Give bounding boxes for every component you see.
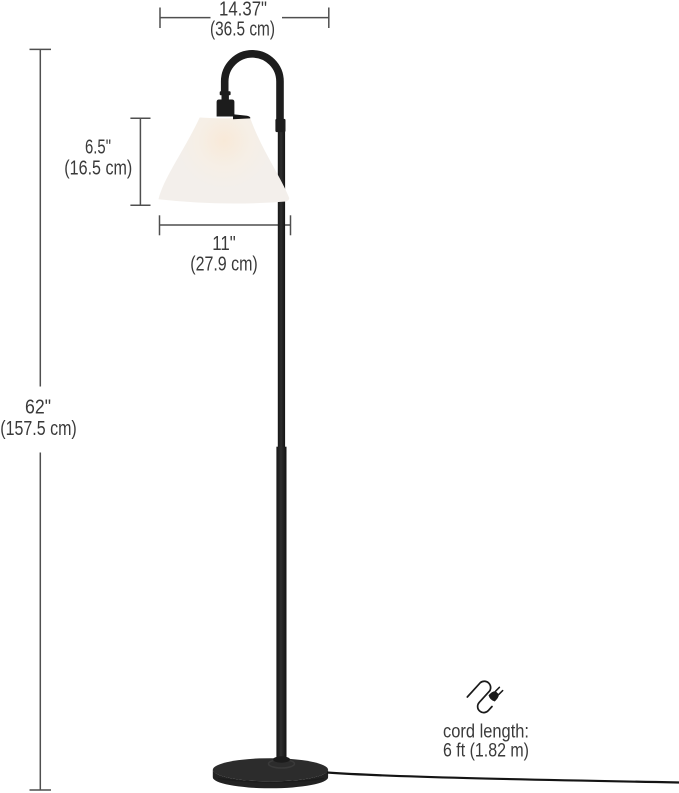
svg-text:(157.5 cm): (157.5 cm) <box>0 418 77 440</box>
svg-text:(36.5 cm): (36.5 cm) <box>210 18 275 40</box>
svg-text:6.5": 6.5" <box>85 137 111 159</box>
svg-text:62": 62" <box>25 397 51 419</box>
svg-text:11": 11" <box>212 233 236 255</box>
svg-text:(16.5 cm): (16.5 cm) <box>64 158 132 180</box>
svg-text:(27.9 cm): (27.9 cm) <box>190 254 258 276</box>
svg-text:6 ft (1.82 m): 6 ft (1.82 m) <box>443 740 529 762</box>
